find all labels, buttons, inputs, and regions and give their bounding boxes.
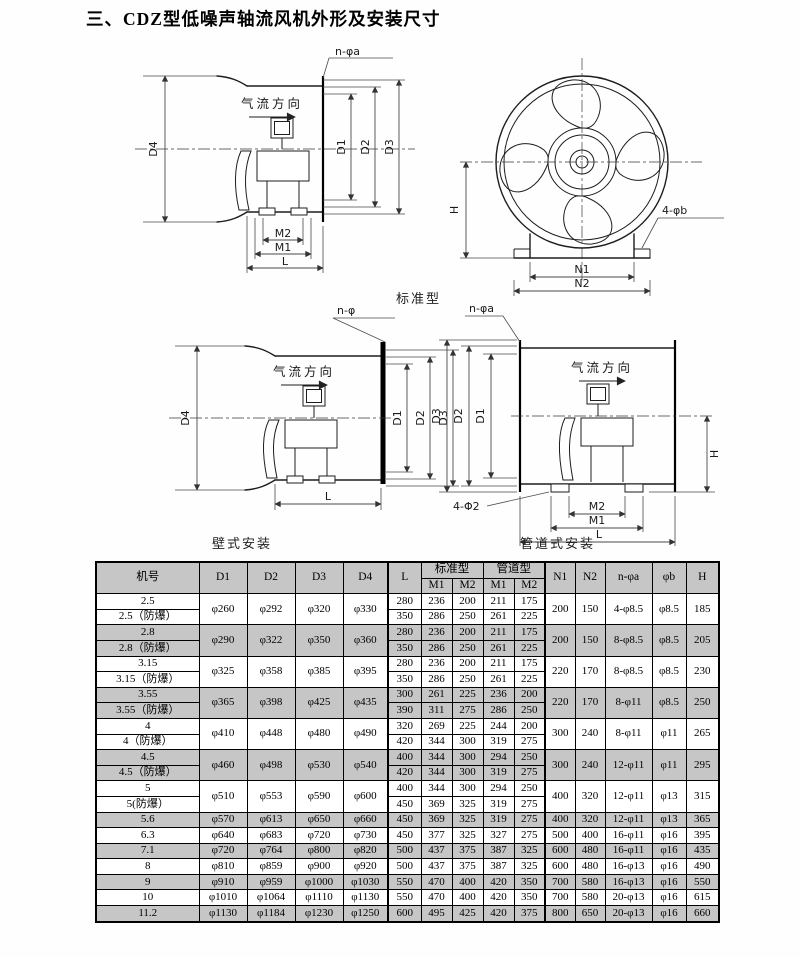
cell-model: 11.2 — [96, 906, 199, 922]
cell-model: 9 — [96, 874, 199, 890]
col-header-phi-b: φb — [652, 562, 686, 594]
cell-n1: 500 — [545, 828, 575, 844]
cell-n2: 240 — [575, 750, 605, 781]
mounting-foot — [551, 484, 569, 492]
dimension-h: H — [649, 416, 721, 492]
col-header-m2-standard: M2 — [452, 578, 483, 594]
dimension-l: L — [275, 484, 381, 510]
cell-d2: φ859 — [247, 859, 295, 875]
dim-label-l: L — [596, 528, 603, 541]
cell-m1-duct: 387 — [483, 859, 514, 875]
cell-m2-std: 250 — [452, 640, 483, 656]
cell-l: 550 — [388, 874, 421, 890]
cell-m2-duct: 250 — [514, 781, 545, 797]
cell-d1: φ910 — [199, 874, 247, 890]
cell-d2: φ398 — [247, 687, 295, 718]
cell-l: 550 — [388, 890, 421, 906]
cell-m2-duct: 200 — [514, 687, 545, 703]
airflow-annotation: 气流方向 — [241, 96, 303, 117]
cell-phi-b: φ8.5 — [652, 625, 686, 656]
cell-l: 450 — [388, 796, 421, 812]
cell-phi-b: φ16 — [652, 859, 686, 875]
cell-h: 550 — [686, 874, 719, 890]
cell-phi-b: φ11 — [652, 750, 686, 781]
cell-m2-std: 300 — [452, 734, 483, 750]
cell-m2-duct: 275 — [514, 765, 545, 781]
col-header-n2: N2 — [575, 562, 605, 594]
cell-n2: 170 — [575, 687, 605, 718]
table-row: 2.5φ260φ292φ320φ330280236200211175200150… — [96, 594, 719, 610]
cell-m1-duct: 261 — [483, 609, 514, 625]
cell-m1-duct: 286 — [483, 703, 514, 719]
cell-l: 450 — [388, 812, 421, 828]
cell-n2: 170 — [575, 656, 605, 687]
bolt-callout: n-φ — [333, 304, 395, 342]
cell-m1-duct: 319 — [483, 796, 514, 812]
cell-phi-b: φ13 — [652, 781, 686, 812]
cell-model: 8 — [96, 859, 199, 875]
cell-d4: φ490 — [343, 718, 388, 749]
cell-n1: 700 — [545, 890, 575, 906]
impeller-hub-assembly — [263, 420, 337, 483]
cell-d2: φ292 — [247, 594, 295, 625]
cell-m2-std: 225 — [452, 718, 483, 734]
cell-l: 500 — [388, 859, 421, 875]
dimension-d1: D1 — [386, 364, 413, 472]
cell-d1: φ570 — [199, 812, 247, 828]
dimension-n2: N2 — [514, 277, 650, 296]
cell-m1-duct: 261 — [483, 672, 514, 688]
cell-model: 2.8 — [96, 625, 199, 641]
cell-m2-std: 300 — [452, 750, 483, 766]
cell-m1-std: 377 — [421, 828, 452, 844]
table-row: 4.5φ460φ498φ530φ540400344300294250300240… — [96, 750, 719, 766]
cell-d1: φ365 — [199, 687, 247, 718]
cell-l: 400 — [388, 750, 421, 766]
cell-d4: φ600 — [343, 781, 388, 812]
bolt-spec-label: n-φ — [337, 304, 355, 317]
cell-m1-duct: 319 — [483, 812, 514, 828]
cell-h: 395 — [686, 828, 719, 844]
table-row: 3.15φ325φ358φ385φ39528023620021117522017… — [96, 656, 719, 672]
cell-model: 3.55 — [96, 687, 199, 703]
bolt-callout: 4-φb — [642, 204, 724, 248]
cell-m2-duct: 275 — [514, 828, 545, 844]
airflow-direction-label: 气流方向 — [241, 96, 303, 111]
cell-m2-std: 250 — [452, 609, 483, 625]
cell-h: 205 — [686, 625, 719, 656]
cell-m1-std: 344 — [421, 750, 452, 766]
cell-h: 250 — [686, 687, 719, 718]
cell-n2: 320 — [575, 781, 605, 812]
col-header-model: 机号 — [96, 562, 199, 594]
col-header-n-phi-a: n-φa — [605, 562, 652, 594]
cell-m2-std: 200 — [452, 656, 483, 672]
col-header-n1: N1 — [545, 562, 575, 594]
cell-d4: φ920 — [343, 859, 388, 875]
cell-m1-duct: 236 — [483, 687, 514, 703]
cell-d2: φ358 — [247, 656, 295, 687]
dim-label-d4: D4 — [179, 410, 192, 425]
cell-d3: φ720 — [295, 828, 343, 844]
cell-d4: φ730 — [343, 828, 388, 844]
col-header-d3: D3 — [295, 562, 343, 594]
col-header-m2-duct: M2 — [514, 578, 545, 594]
cell-m2-duct: 275 — [514, 734, 545, 750]
cell-m1-duct: 211 — [483, 594, 514, 610]
cell-phi-b: φ16 — [652, 890, 686, 906]
cell-m2-std: 400 — [452, 874, 483, 890]
cell-phi-b: φ13 — [652, 812, 686, 828]
cell-d4: φ435 — [343, 687, 388, 718]
cell-d3: φ320 — [295, 594, 343, 625]
cell-d3: φ650 — [295, 812, 343, 828]
cell-l: 390 — [388, 703, 421, 719]
cell-d3: φ590 — [295, 781, 343, 812]
cell-m2-std: 275 — [452, 703, 483, 719]
cell-m2-duct: 275 — [514, 812, 545, 828]
cell-l: 600 — [388, 906, 421, 922]
cell-d4: φ1130 — [343, 890, 388, 906]
cell-n-phi-a: 4-φ8.5 — [605, 594, 652, 625]
cell-m2-duct: 275 — [514, 796, 545, 812]
cell-h: 295 — [686, 750, 719, 781]
cell-d1: φ720 — [199, 843, 247, 859]
cell-m1-std: 470 — [421, 874, 452, 890]
cell-phi-b: φ16 — [652, 906, 686, 922]
cell-m2-std: 300 — [452, 781, 483, 797]
cell-h: 315 — [686, 781, 719, 812]
cell-l: 450 — [388, 828, 421, 844]
cell-d2: φ498 — [247, 750, 295, 781]
dimension-d1: D1 — [323, 94, 357, 200]
cell-h: 365 — [686, 812, 719, 828]
cell-n2: 480 — [575, 843, 605, 859]
cell-n1: 300 — [545, 718, 575, 749]
caption-wall-mount: 壁式安装 — [212, 533, 272, 552]
cell-phi-b: φ16 — [652, 843, 686, 859]
cell-n2: 580 — [575, 874, 605, 890]
cell-phi-b: φ8.5 — [652, 656, 686, 687]
cell-n1: 400 — [545, 812, 575, 828]
table-row: 4φ410φ448φ480φ4903202692252442003002408-… — [96, 718, 719, 734]
cell-m2-duct: 175 — [514, 594, 545, 610]
cell-d3: φ425 — [295, 687, 343, 718]
cell-d4: φ540 — [343, 750, 388, 781]
cell-m1-duct: 420 — [483, 874, 514, 890]
dimension-table: 机号D1D2D3D4L标准型管道型N1N2n-φaφbHM1M2M1M22.5φ… — [95, 561, 720, 923]
dim-label-d4: D4 — [147, 141, 160, 156]
cell-model: 2.8（防爆） — [96, 640, 199, 656]
cell-model: 5 — [96, 781, 199, 797]
cell-n2: 150 — [575, 594, 605, 625]
cell-d1: φ810 — [199, 859, 247, 875]
cell-n-phi-a: 8-φ8.5 — [605, 656, 652, 687]
cell-d3: φ1110 — [295, 890, 343, 906]
cell-m1-duct: 420 — [483, 906, 514, 922]
cell-d1: φ460 — [199, 750, 247, 781]
cell-model: 4.5 — [96, 750, 199, 766]
feet-bolt-spec-label: 4-Φ2 — [453, 500, 480, 513]
cell-m1-duct: 319 — [483, 734, 514, 750]
col-header-d1: D1 — [199, 562, 247, 594]
cell-d3: φ1230 — [295, 906, 343, 922]
cell-l: 320 — [388, 718, 421, 734]
cell-l: 500 — [388, 843, 421, 859]
cell-m2-std: 325 — [452, 828, 483, 844]
col-header-l: L — [388, 562, 421, 594]
cell-m2-std: 325 — [452, 812, 483, 828]
dim-label-n2: N2 — [574, 277, 589, 290]
bolt-spec-label: n-φa — [469, 302, 494, 315]
cell-m1-std: 369 — [421, 812, 452, 828]
cell-phi-b: φ16 — [652, 828, 686, 844]
impeller-hub-assembly — [551, 418, 643, 492]
cell-n-phi-a: 20-φ13 — [605, 906, 652, 922]
cell-d4: φ660 — [343, 812, 388, 828]
table-row: 2.8φ290φ322φ350φ360280236200211175200150… — [96, 625, 719, 641]
cell-model: 4.5（防爆） — [96, 765, 199, 781]
cell-n-phi-a: 12-φ11 — [605, 812, 652, 828]
cell-d2: φ683 — [247, 828, 295, 844]
airflow-annotation: 气流方向 — [273, 364, 335, 385]
table-row: 9φ910φ959φ1000φ1030550470400420350700580… — [96, 874, 719, 890]
mounting-foot — [625, 484, 643, 492]
cell-m1-duct: 211 — [483, 625, 514, 641]
cell-model: 3.15 — [96, 656, 199, 672]
cell-phi-b: φ8.5 — [652, 687, 686, 718]
cell-m1-std: 369 — [421, 796, 452, 812]
cell-n1: 700 — [545, 874, 575, 890]
dim-label-d1: D1 — [335, 139, 348, 154]
cell-d4: φ395 — [343, 656, 388, 687]
cell-d4: φ1030 — [343, 874, 388, 890]
cell-n1: 600 — [545, 843, 575, 859]
cell-m1-duct: 319 — [483, 765, 514, 781]
cell-n-phi-a: 20-φ13 — [605, 890, 652, 906]
col-header-m1-duct: M1 — [483, 578, 514, 594]
cell-m2-std: 300 — [452, 765, 483, 781]
cell-h: 435 — [686, 843, 719, 859]
table-row: 6.3φ640φ683φ720φ730450377325327275500400… — [96, 828, 719, 844]
cell-d4: φ360 — [343, 625, 388, 656]
cell-m2-std: 400 — [452, 890, 483, 906]
cell-n2: 480 — [575, 859, 605, 875]
col-header-d2: D2 — [247, 562, 295, 594]
cell-m1-std: 286 — [421, 672, 452, 688]
airflow-direction-label: 气流方向 — [571, 360, 633, 375]
cell-m2-duct: 325 — [514, 843, 545, 859]
page-title: 三、CDZ型低噪声轴流风机外形及安装尺寸 — [86, 6, 440, 31]
figure-duct-mount: 气流方向 n-φa D3 D2 D1 4-Φ2 M2 M1 — [425, 296, 745, 548]
cell-phi-b: φ11 — [652, 718, 686, 749]
dim-label-d1: D1 — [391, 410, 404, 425]
cell-d2: φ764 — [247, 843, 295, 859]
cell-d1: φ1010 — [199, 890, 247, 906]
cell-d2: φ322 — [247, 625, 295, 656]
dim-label-l: L — [325, 490, 332, 503]
cell-model: 4（防爆） — [96, 734, 199, 750]
cell-n-phi-a: 12-φ11 — [605, 750, 652, 781]
cell-m1-std: 344 — [421, 765, 452, 781]
cell-phi-b: φ8.5 — [652, 594, 686, 625]
dimension-d1: D1 — [474, 354, 517, 478]
figure-front-view: H N1 N2 4-φb — [430, 44, 730, 300]
cell-l: 350 — [388, 609, 421, 625]
feet-bolt-callout: 4-Φ2 — [453, 492, 549, 513]
cell-m1-std: 236 — [421, 656, 452, 672]
dim-label-d2: D2 — [359, 139, 372, 154]
cell-n-phi-a: 8-φ11 — [605, 687, 652, 718]
cell-m2-duct: 350 — [514, 890, 545, 906]
cell-m1-duct: 261 — [483, 640, 514, 656]
cell-m1-std: 437 — [421, 843, 452, 859]
cell-d2: φ959 — [247, 874, 295, 890]
table-row: 7.1φ720φ764φ800φ820500437375387325600480… — [96, 843, 719, 859]
cell-m1-std: 437 — [421, 859, 452, 875]
cell-l: 400 — [388, 781, 421, 797]
cell-m2-duct: 250 — [514, 750, 545, 766]
cell-l: 350 — [388, 640, 421, 656]
cell-m2-duct: 200 — [514, 718, 545, 734]
cell-d3: φ530 — [295, 750, 343, 781]
cell-d1: φ1130 — [199, 906, 247, 922]
cell-n1: 220 — [545, 687, 575, 718]
cell-d2: φ553 — [247, 781, 295, 812]
cell-d2: φ1064 — [247, 890, 295, 906]
col-header-m1-standard: M1 — [421, 578, 452, 594]
cell-m1-duct: 387 — [483, 843, 514, 859]
cell-m1-duct: 294 — [483, 781, 514, 797]
cell-d3: φ480 — [295, 718, 343, 749]
cell-n-phi-a: 16-φ13 — [605, 859, 652, 875]
cell-l: 420 — [388, 734, 421, 750]
dim-label-m1: M1 — [275, 241, 292, 254]
cell-d2: φ613 — [247, 812, 295, 828]
cell-d1: φ325 — [199, 656, 247, 687]
bolt-callout: n-φa — [465, 302, 520, 342]
cell-l: 280 — [388, 594, 421, 610]
cell-n2: 650 — [575, 906, 605, 922]
figure-standard-side-view: 气流方向 n-φa D4 D1 D2 D3 M2 M1 — [95, 40, 435, 300]
cell-m2-std: 325 — [452, 796, 483, 812]
cell-n2: 240 — [575, 718, 605, 749]
cell-m2-std: 375 — [452, 843, 483, 859]
dim-label-m2: M2 — [275, 227, 292, 240]
dimension-d2: D2 — [323, 87, 381, 207]
cell-n1: 200 — [545, 625, 575, 656]
cell-m2-duct: 225 — [514, 609, 545, 625]
cell-m1-duct: 211 — [483, 656, 514, 672]
cell-l: 280 — [388, 656, 421, 672]
table-row: 11.2φ1130φ1184φ1230φ12506004954254203758… — [96, 906, 719, 922]
bolt-callout: n-φa — [323, 45, 393, 78]
dim-label-d3: D3 — [430, 408, 443, 423]
cell-model: 2.5（防爆） — [96, 609, 199, 625]
cell-model: 5(防爆） — [96, 796, 199, 812]
cell-model: 6.3 — [96, 828, 199, 844]
cell-m2-duct: 350 — [514, 874, 545, 890]
cell-m1-duct: 327 — [483, 828, 514, 844]
cell-m1-duct: 244 — [483, 718, 514, 734]
cell-d4: φ1250 — [343, 906, 388, 922]
cell-n-phi-a: 16-φ13 — [605, 874, 652, 890]
cell-n2: 150 — [575, 625, 605, 656]
cell-l: 420 — [388, 765, 421, 781]
cell-m2-duct: 250 — [514, 703, 545, 719]
table-row: 5φ510φ553φ590φ60040034430029425040032012… — [96, 781, 719, 797]
cell-l: 350 — [388, 672, 421, 688]
dim-label-n1: N1 — [574, 263, 589, 276]
cell-l: 280 — [388, 625, 421, 641]
cell-m1-std: 236 — [421, 594, 452, 610]
dim-label-d2: D2 — [452, 408, 465, 423]
impeller-hub-assembly — [235, 151, 309, 215]
cell-n2: 320 — [575, 812, 605, 828]
caption-duct-mount: 管道式安装 — [520, 533, 595, 552]
table-row: 8φ810φ859φ900φ92050043737538732560048016… — [96, 859, 719, 875]
cell-n-phi-a: 8-φ11 — [605, 718, 652, 749]
cell-h: 230 — [686, 656, 719, 687]
cell-m1-duct: 294 — [483, 750, 514, 766]
dim-label-m1: M1 — [589, 514, 606, 527]
cell-m1-std: 344 — [421, 734, 452, 750]
airflow-direction-label: 气流方向 — [273, 364, 335, 379]
cell-n-phi-a: 8-φ8.5 — [605, 625, 652, 656]
cell-m2-duct: 375 — [514, 906, 545, 922]
dim-label-l: L — [282, 255, 289, 268]
cell-n-phi-a: 12-φ11 — [605, 781, 652, 812]
cell-h: 490 — [686, 859, 719, 875]
motor-box — [587, 384, 609, 416]
cell-d1: φ640 — [199, 828, 247, 844]
col-header-standard-type: 标准型 — [421, 562, 483, 578]
cell-n1: 200 — [545, 594, 575, 625]
cell-m1-std: 311 — [421, 703, 452, 719]
bolt-spec-label: n-φa — [335, 45, 360, 58]
cell-n1: 400 — [545, 781, 575, 812]
cell-n-phi-a: 16-φ11 — [605, 843, 652, 859]
cell-m2-duct: 175 — [514, 625, 545, 641]
cell-m2-std: 200 — [452, 594, 483, 610]
cell-h: 265 — [686, 718, 719, 749]
col-header-d4: D4 — [343, 562, 388, 594]
cell-l: 300 — [388, 687, 421, 703]
cell-d3: φ900 — [295, 859, 343, 875]
cell-d1: φ510 — [199, 781, 247, 812]
cell-model: 7.1 — [96, 843, 199, 859]
cell-d2: φ1184 — [247, 906, 295, 922]
cell-d1: φ260 — [199, 594, 247, 625]
cell-model: 3.55（防爆） — [96, 703, 199, 719]
cell-model: 4 — [96, 718, 199, 734]
cell-model: 5.6 — [96, 812, 199, 828]
table-row: 3.55φ365φ398φ425φ43530026122523620022017… — [96, 687, 719, 703]
dimension-h: H — [448, 162, 514, 258]
cell-h: 615 — [686, 890, 719, 906]
col-header-h: H — [686, 562, 719, 594]
cell-n1: 300 — [545, 750, 575, 781]
cell-d1: φ290 — [199, 625, 247, 656]
dim-label-h: H — [448, 206, 461, 214]
document-page: { "page": { "title": "三、CDZ型低噪声轴流风机外形及安装… — [0, 0, 800, 957]
cell-m1-std: 286 — [421, 609, 452, 625]
cell-model: 10 — [96, 890, 199, 906]
cell-d2: φ448 — [247, 718, 295, 749]
cell-m2-std: 250 — [452, 672, 483, 688]
cell-n-phi-a: 16-φ11 — [605, 828, 652, 844]
cell-model: 2.5 — [96, 594, 199, 610]
